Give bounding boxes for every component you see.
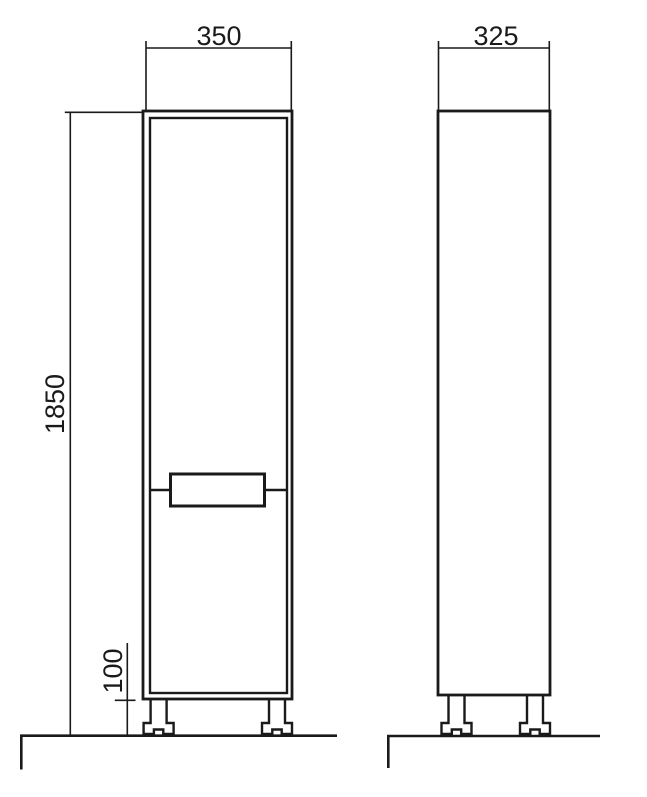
technical-drawing-canvas: 350 325 1850 100 [0, 0, 647, 797]
dimension-side-depth: 325 [439, 21, 550, 110]
front-right-leg [262, 699, 292, 734]
front-width-label: 350 [196, 21, 241, 51]
dimension-leg-height: 100 [98, 643, 136, 735]
side-cabinet-outline [438, 111, 550, 695]
ground-line-side [388, 736, 600, 768]
front-view [143, 111, 292, 734]
ground-line-front [21, 736, 337, 770]
side-left-leg [442, 695, 472, 734]
door-handle [171, 474, 265, 506]
total-height-label: 1850 [40, 374, 70, 434]
front-cabinet-outline [143, 111, 292, 699]
dimension-front-width: 350 [146, 21, 291, 110]
side-view [438, 111, 550, 734]
side-depth-label: 325 [473, 21, 518, 51]
front-left-leg [144, 699, 174, 734]
dimension-total-height: 1850 [40, 112, 143, 734]
side-right-leg [520, 695, 550, 734]
front-door-panel [150, 118, 287, 693]
leg-height-label: 100 [98, 648, 128, 693]
cabinet-dimension-drawing: 350 325 1850 100 [0, 0, 647, 797]
